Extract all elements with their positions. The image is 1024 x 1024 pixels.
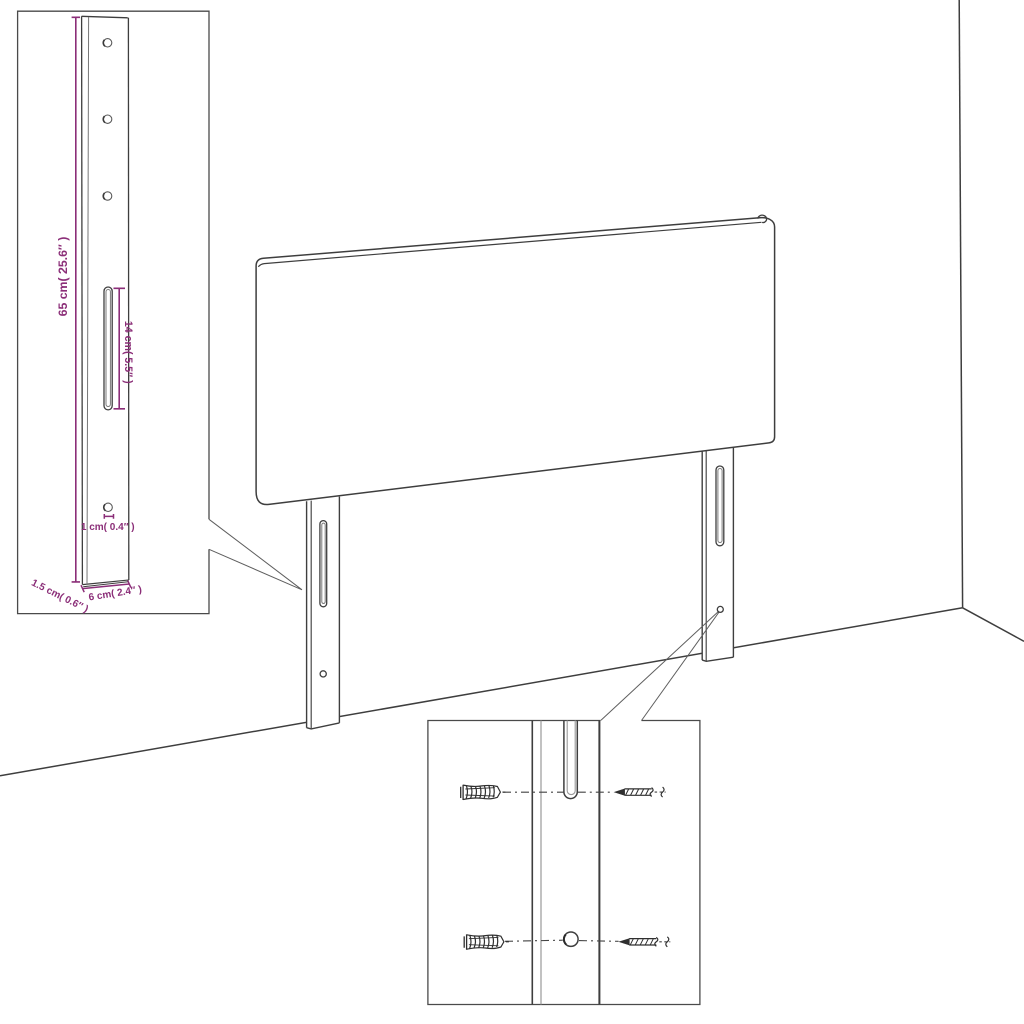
svg-text:14 cm( 5.5″ ): 14 cm( 5.5″ )	[122, 321, 134, 384]
svg-text:65 cm( 25.6″ ): 65 cm( 25.6″ )	[56, 237, 70, 317]
svg-text:1 cm( 0.4″ ): 1 cm( 0.4″ )	[81, 522, 135, 533]
